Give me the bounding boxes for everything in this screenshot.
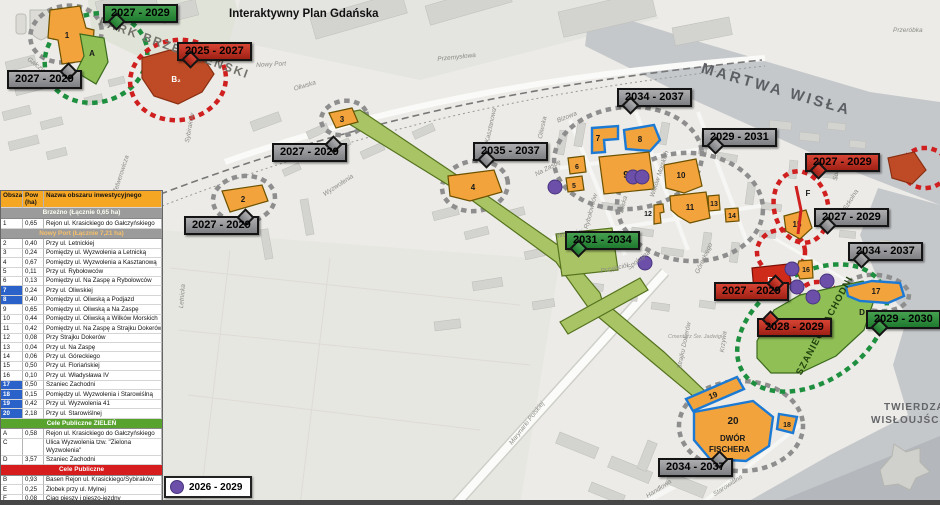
purple-dot-marker[interactable] — [820, 274, 834, 288]
legend-row[interactable]: 100,44Pomiędzy ul. Oliwską a Wilków Mors… — [1, 315, 162, 324]
legend-row[interactable]: 202,18Przy ul. Starowiślnej — [1, 409, 162, 418]
legend-header-pow: Pow (ha) — [23, 191, 44, 208]
legend-table-body: Brzeźno (Łącznie 0,65 ha)10,65Rejon ul. … — [1, 208, 162, 505]
date-callout-gray: 2035 - 2037 — [473, 142, 548, 161]
legend-row[interactable]: 180,15Pomiędzy ul. Wyzwolenia i Starowiś… — [1, 390, 162, 399]
date-callout-gray: 2027 - 2029 — [272, 143, 347, 162]
legend-cell: 0,25 — [23, 485, 44, 494]
area-label: 14 — [728, 213, 736, 220]
legend-cell: 15 — [1, 362, 23, 371]
legend-cell: Basen Rejon ul. Krasickiego/Sybiraków — [44, 476, 162, 485]
map-label: WISŁOUJŚCIE — [871, 415, 940, 426]
legend-cell: 3 — [1, 249, 23, 258]
date-callout-gray: 2027 - 2029 — [184, 216, 259, 235]
legend-cell: 16 — [1, 371, 23, 380]
date-callout-red: 2028 - 2029 — [757, 318, 832, 337]
legend-cell: Rejon ul. Krasickiego do Gałczyńskiego — [44, 219, 162, 228]
legend-cell: 18 — [1, 390, 23, 399]
legend-row[interactable]: 40,67Pomiędzy ul. Wyzwolenia a Kasztanow… — [1, 258, 162, 267]
legend-section: Cele Publiczne — [1, 465, 162, 476]
purple-dot-marker[interactable] — [548, 180, 562, 194]
date-callout-red: 2027 - 2029 — [714, 282, 789, 301]
purple-dot-marker[interactable] — [785, 262, 799, 276]
legend-cell: Rejon ul. Krasickiego do Gałczyńskiego — [44, 429, 162, 438]
legend-cell: Pomiędzy ul. Oliwską a Na Zaspę — [44, 305, 162, 314]
legend-cell: 0,15 — [23, 390, 44, 399]
legend-cell: 0,10 — [23, 371, 44, 380]
legend-section: Brzeźno (Łącznie 0,65 ha) — [1, 208, 162, 219]
legend-cell: Przy ul. Letnickiej — [44, 239, 162, 248]
dot-date-legend: 2026 - 2029 — [164, 476, 252, 498]
legend-row[interactable]: 50,11Przy ul. Rybołowców — [1, 268, 162, 277]
date-callout-gray: 2034 - 2037 — [658, 458, 733, 477]
legend-cell: 12 — [1, 334, 23, 343]
legend-cell: 9 — [1, 305, 23, 314]
legend-cell: 17 — [1, 381, 23, 390]
legend-cell: 1 — [1, 219, 23, 228]
legend-table-header: Obszar Pow (ha) Nazwa obszaru inwestycyj… — [1, 191, 162, 208]
legend-cell: Ulica Wyzwolenia tzw. "Zielona Wyzwoleni… — [44, 439, 162, 456]
legend-cell: 7 — [1, 286, 23, 295]
map-label: FISCHERA — [709, 445, 750, 454]
legend-cell: B — [1, 476, 23, 485]
investment-area-unlabeled[interactable] — [888, 152, 926, 184]
legend-cell: 20 — [1, 409, 23, 418]
date-callout-gray: 2029 - 2031 — [702, 128, 777, 147]
legend-cell: Przy ul. Starowiślnej — [44, 409, 162, 418]
legend-row[interactable]: 160,10Przy ul. Władysława IV — [1, 371, 162, 380]
legend-cell: 0,44 — [23, 315, 44, 324]
legend-cell: 0,42 — [23, 400, 44, 409]
legend-cell: Szaniec Zachodni — [44, 381, 162, 390]
map-label: Interaktywny Plan Gdańska — [229, 8, 379, 20]
map-label: Przeróbka — [893, 27, 923, 34]
legend-cell: Przy ul. Na Zaspę — [44, 343, 162, 352]
legend-row[interactable]: 90,65Pomiędzy ul. Oliwską a Na Zaspę — [1, 305, 162, 314]
area-label: 1 — [65, 31, 70, 40]
area-label: 20 — [727, 416, 739, 427]
legend-cell: 13 — [1, 343, 23, 352]
legend-row[interactable]: 70,24Przy ul. Oliwskiej — [1, 286, 162, 295]
legend-cell: 10 — [1, 315, 23, 324]
legend-cell: 0,65 — [23, 219, 44, 228]
legend-cell: 4 — [1, 258, 23, 267]
legend-row[interactable]: A0,58Rejon ul. Krasickiego do Gałczyński… — [1, 429, 162, 438]
date-callout-gray: 2027 - 2029 — [814, 208, 889, 227]
purple-dot-marker[interactable] — [635, 170, 649, 184]
legend-row[interactable]: D3,57Szaniec Zachodni — [1, 456, 162, 465]
legend-cell: Przy ul. Rybołowców — [44, 268, 162, 277]
legend-cell: Pomiędzy ul. Oliwską a Podjazd — [44, 296, 162, 305]
legend-row[interactable]: 10,65Rejon ul. Krasickiego do Gałczyński… — [1, 219, 162, 228]
legend-cell: 0,50 — [23, 381, 44, 390]
purple-dot-marker[interactable] — [806, 290, 820, 304]
legend-cell: 0,06 — [23, 352, 44, 361]
area-label: 7 — [596, 134, 601, 143]
legend-cell: 0,11 — [23, 268, 44, 277]
legend-row[interactable]: B0,93Basen Rejon ul. Krasickiego/Sybirak… — [1, 476, 162, 485]
legend-cell: Pomiędzy ul. Wyzwolenia i Starowiślną — [44, 390, 162, 399]
bottom-edge-strip — [0, 500, 940, 505]
legend-cell: Pomiędzy ul. Na Zaspę a Rybołowców — [44, 277, 162, 286]
area-label: 8 — [638, 135, 643, 144]
legend-cell: 0,13 — [23, 277, 44, 286]
purple-dot-marker[interactable] — [790, 280, 804, 294]
legend-cell: 3,57 — [23, 456, 44, 465]
legend-cell: Przy ul. Góreckiego — [44, 352, 162, 361]
legend-cell: 0,50 — [23, 362, 44, 371]
legend-section: Nowy Port (Łącznie 7,21 ha) — [1, 229, 162, 240]
date-callout-gray: 2034 - 2037 — [617, 88, 692, 107]
legend-cell: 0,42 — [23, 324, 44, 333]
area-label: 16 — [802, 267, 810, 274]
date-callout-green: 2029 - 2030 — [866, 310, 940, 329]
legend-row[interactable]: 150,50Przy ul. Floriańskiej — [1, 362, 162, 371]
area-label: 17 — [872, 287, 881, 296]
area-label: 18 — [783, 422, 791, 429]
legend-row[interactable]: 190,42Przy ul. Wyzwolenia 41 — [1, 400, 162, 409]
area-label: A — [89, 49, 95, 58]
legend-cell: 0,24 — [23, 286, 44, 295]
legend-cell: 0,58 — [23, 429, 44, 438]
investment-area-12[interactable] — [654, 204, 664, 224]
area-label: 2 — [241, 195, 246, 204]
legend-section: Cele Publiczne ZIELEŃ — [1, 419, 162, 430]
legend-cell: 0,08 — [23, 334, 44, 343]
area-label: F — [806, 189, 811, 198]
legend-cell: Pomiędzy ul. Wyzwolenia a Letnicką — [44, 249, 162, 258]
legend-table: Obszar Pow (ha) Nazwa obszaru inwestycyj… — [0, 190, 163, 505]
legend-cell: E — [1, 485, 23, 494]
map-label: TWIERDZA — [884, 402, 940, 413]
legend-row[interactable]: CUlica Wyzwolenia tzw. "Zielona Wyzwolen… — [1, 439, 162, 456]
area-label: 13 — [710, 201, 718, 208]
legend-cell: 0,40 — [23, 296, 44, 305]
legend-cell: C — [1, 439, 23, 456]
area-label: 6 — [575, 164, 579, 171]
legend-cell: 8 — [1, 296, 23, 305]
legend-row[interactable]: 30,24Pomiędzy ul. Wyzwolenia a Letnicką — [1, 249, 162, 258]
legend-cell — [23, 439, 44, 456]
legend-cell: 6 — [1, 277, 23, 286]
legend-cell: 0,65 — [23, 305, 44, 314]
legend-cell: 11 — [1, 324, 23, 333]
legend-cell: 14 — [1, 352, 23, 361]
legend-row[interactable]: 110,42Pomiędzy ul. Na Zaspę a Strajku Do… — [1, 324, 162, 333]
legend-cell: 0,40 — [23, 239, 44, 248]
legend-cell: Pomiędzy ul. Wyzwolenia a Kasztanową — [44, 258, 162, 267]
legend-header-obszar: Obszar — [1, 191, 23, 208]
area-label: 12 — [644, 211, 652, 218]
legend-cell: Żłobek przy ul. Mylnej — [44, 485, 162, 494]
date-callout-red: 2025 - 2027 — [177, 42, 252, 61]
legend-cell: Szaniec Zachodni — [44, 456, 162, 465]
legend-cell: 2 — [1, 239, 23, 248]
legend-cell: 0,24 — [23, 249, 44, 258]
date-callout-green: 2031 - 2034 — [565, 231, 640, 250]
legend-row[interactable]: 120,08Przy Strajku Dokerów — [1, 334, 162, 343]
area-label: 3 — [340, 115, 345, 124]
legend-cell: Przy Strajku Dokerów — [44, 334, 162, 343]
legend-cell: Przy ul. Oliwskiej — [44, 286, 162, 295]
legend-row[interactable]: 60,13Pomiędzy ul. Na Zaspę a Rybołowców — [1, 277, 162, 286]
legend-cell: 0,04 — [23, 343, 44, 352]
area-label: 4 — [471, 183, 476, 192]
legend-row[interactable]: 20,40Przy ul. Letnickiej — [1, 239, 162, 248]
map-stage[interactable]: CD1AB₂234567891011121314151617181920EF O… — [0, 0, 940, 505]
legend-cell: 19 — [1, 400, 23, 409]
legend-row[interactable]: 140,06Przy ul. Góreckiego — [1, 352, 162, 361]
date-callout-green: 2027 - 2029 — [103, 4, 178, 23]
legend-cell: Pomiędzy ul. Na Zaspę a Strajku Dokerów — [44, 324, 162, 333]
legend-cell: 0,67 — [23, 258, 44, 267]
legend-cell: 5 — [1, 268, 23, 277]
area-label: 5 — [572, 183, 576, 190]
legend-row[interactable]: E0,25Żłobek przy ul. Mylnej — [1, 485, 162, 494]
map-label: DWÓR — [720, 434, 745, 443]
date-callout-gray: 2034 - 2037 — [848, 242, 923, 261]
legend-cell: A — [1, 429, 23, 438]
legend-header-nazwa: Nazwa obszaru inwestycyjnego — [44, 191, 162, 208]
legend-cell: Przy ul. Wyzwolenia 41 — [44, 400, 162, 409]
legend-cell: D — [1, 456, 23, 465]
legend-cell: Pomiędzy ul. Oliwską a Wilków Morskich — [44, 315, 162, 324]
legend-cell: 0,93 — [23, 476, 44, 485]
legend-row[interactable]: 130,04Przy ul. Na Zaspę — [1, 343, 162, 352]
legend-cell: Przy ul. Władysława IV — [44, 371, 162, 380]
purple-dot-icon — [170, 480, 184, 494]
legend-cell: Przy ul. Floriańskiej — [44, 362, 162, 371]
area-label: B₂ — [171, 75, 181, 84]
legend-row[interactable]: 170,50Szaniec Zachodni — [1, 381, 162, 390]
date-callout-red: 2027 - 2029 — [805, 153, 880, 172]
legend-cell: 2,18 — [23, 409, 44, 418]
area-label: 11 — [686, 203, 695, 212]
area-label: 10 — [677, 171, 686, 180]
date-callout-gray: 2027 - 2029 — [7, 70, 82, 89]
legend-row[interactable]: 80,40Pomiędzy ul. Oliwską a Podjazd — [1, 296, 162, 305]
area-label: D — [859, 308, 865, 317]
dot-legend-label: 2026 - 2029 — [189, 482, 242, 493]
map-label: Cmentarz Św. Jadwigi — [668, 334, 722, 340]
